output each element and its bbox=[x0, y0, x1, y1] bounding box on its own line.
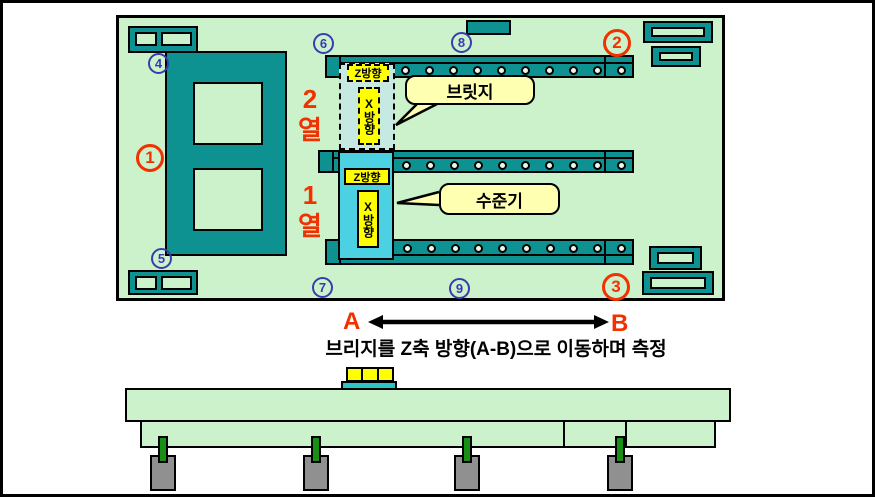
rail-hole bbox=[450, 161, 459, 170]
marker-2: 2 bbox=[603, 29, 631, 57]
side-block-bottom-1 bbox=[649, 246, 702, 270]
block-slot bbox=[659, 52, 693, 61]
rail-hole bbox=[402, 161, 411, 170]
rail-hole bbox=[449, 66, 458, 75]
support-leg bbox=[454, 436, 480, 491]
rail-hole bbox=[401, 66, 410, 75]
rail-end-line bbox=[604, 150, 606, 173]
z-direction-label-row1: Z방향 bbox=[344, 168, 390, 185]
rail-holes bbox=[403, 242, 626, 254]
leg-stem bbox=[615, 436, 625, 463]
marker-4: 4 bbox=[148, 53, 169, 74]
rail-hole bbox=[593, 161, 602, 170]
block-slot bbox=[161, 32, 192, 46]
leg-stem bbox=[462, 436, 472, 463]
device-base bbox=[341, 381, 397, 390]
marker-3: 3 bbox=[602, 273, 630, 301]
slab-divider bbox=[563, 422, 565, 446]
rail-hole bbox=[617, 66, 626, 75]
block-slot bbox=[135, 276, 157, 290]
marker-7: 7 bbox=[312, 277, 333, 298]
corner-block-bottom-left bbox=[128, 270, 198, 295]
rail-hole bbox=[474, 244, 483, 253]
block-slot bbox=[651, 27, 705, 37]
rail-hole bbox=[521, 66, 530, 75]
rail-hole bbox=[403, 244, 412, 253]
corner-block-top-left bbox=[128, 26, 198, 53]
rail-hole bbox=[546, 244, 555, 253]
caption: 브리지를 Z축 방향(A-B)으로 이동하며 측정 bbox=[241, 334, 751, 361]
marker-9: 9 bbox=[449, 278, 470, 299]
support-leg bbox=[303, 436, 329, 491]
rail-hole bbox=[427, 244, 436, 253]
rail-hole bbox=[451, 244, 460, 253]
rail-end-line bbox=[604, 55, 606, 78]
z-direction-label-row2: Z방향 bbox=[347, 64, 389, 82]
marker-6: 6 bbox=[313, 33, 334, 54]
rail-hole bbox=[425, 66, 434, 75]
top-edge-tab bbox=[466, 20, 511, 35]
rail-hole bbox=[498, 161, 507, 170]
top-slab bbox=[125, 388, 731, 422]
point-b-label: B bbox=[611, 310, 628, 338]
marker-8: 8 bbox=[451, 32, 472, 53]
side-block-bottom-2 bbox=[642, 271, 714, 295]
ab-arrow bbox=[366, 312, 611, 332]
rail-hole bbox=[617, 161, 626, 170]
rail-hole bbox=[473, 66, 482, 75]
level-device-side bbox=[340, 367, 398, 390]
callout-tail bbox=[389, 102, 449, 132]
surface-plate-top-view: Z방향 X방향 Z방향 X방향 브릿지 수준기 1 2 3 4 5 6 7 8 … bbox=[116, 15, 725, 301]
rail-hole bbox=[569, 161, 578, 170]
rail-hole bbox=[569, 66, 578, 75]
stand-block bbox=[165, 51, 287, 256]
rail-hole bbox=[474, 161, 483, 170]
side-block-top-2 bbox=[651, 46, 701, 67]
device-cell bbox=[377, 367, 394, 382]
leg-stem bbox=[158, 436, 168, 463]
marker-1: 1 bbox=[136, 144, 164, 172]
rail-end-cap bbox=[318, 150, 334, 173]
rail-hole bbox=[593, 244, 602, 253]
rail-hole bbox=[497, 66, 506, 75]
rail-hole bbox=[498, 244, 507, 253]
callout-tail bbox=[393, 188, 443, 212]
rail-hole bbox=[545, 161, 554, 170]
bridge-position-row2: Z방향 X방향 bbox=[339, 63, 395, 150]
support-leg bbox=[607, 436, 633, 491]
block-slot bbox=[657, 252, 694, 264]
support-leg bbox=[150, 436, 176, 491]
stand-opening-upper bbox=[193, 82, 263, 145]
callout-bridge: 브릿지 bbox=[405, 75, 535, 105]
side-block-top-1 bbox=[643, 21, 713, 43]
rail-hole bbox=[522, 244, 531, 253]
rail-hole bbox=[426, 161, 435, 170]
x-direction-label-row1: X방향 bbox=[357, 190, 379, 248]
rail-hole bbox=[545, 66, 554, 75]
rail-hole bbox=[593, 66, 602, 75]
rail-hole bbox=[569, 244, 578, 253]
rail-holes bbox=[402, 159, 626, 171]
rail-hole bbox=[617, 244, 626, 253]
row1-label: 1 열 bbox=[293, 180, 327, 242]
rail-end-line bbox=[604, 239, 606, 265]
block-slot bbox=[161, 276, 192, 290]
bridge-row1: Z방향 X방향 bbox=[338, 151, 394, 260]
point-a-label: A bbox=[343, 308, 360, 336]
block-slot bbox=[650, 277, 706, 289]
measurement-diagram: Z방향 X방향 Z방향 X방향 브릿지 수준기 1 2 3 4 5 6 7 8 … bbox=[0, 0, 875, 497]
x-direction-label-row2: X방향 bbox=[358, 87, 380, 145]
marker-5: 5 bbox=[151, 248, 172, 269]
stand-opening-lower bbox=[193, 168, 263, 231]
row2-label: 2 열 bbox=[293, 84, 327, 146]
leg-stem bbox=[311, 436, 321, 463]
block-slot bbox=[135, 32, 157, 46]
device-cells bbox=[346, 367, 392, 382]
callout-level: 수준기 bbox=[439, 183, 560, 215]
rail-hole bbox=[521, 161, 530, 170]
